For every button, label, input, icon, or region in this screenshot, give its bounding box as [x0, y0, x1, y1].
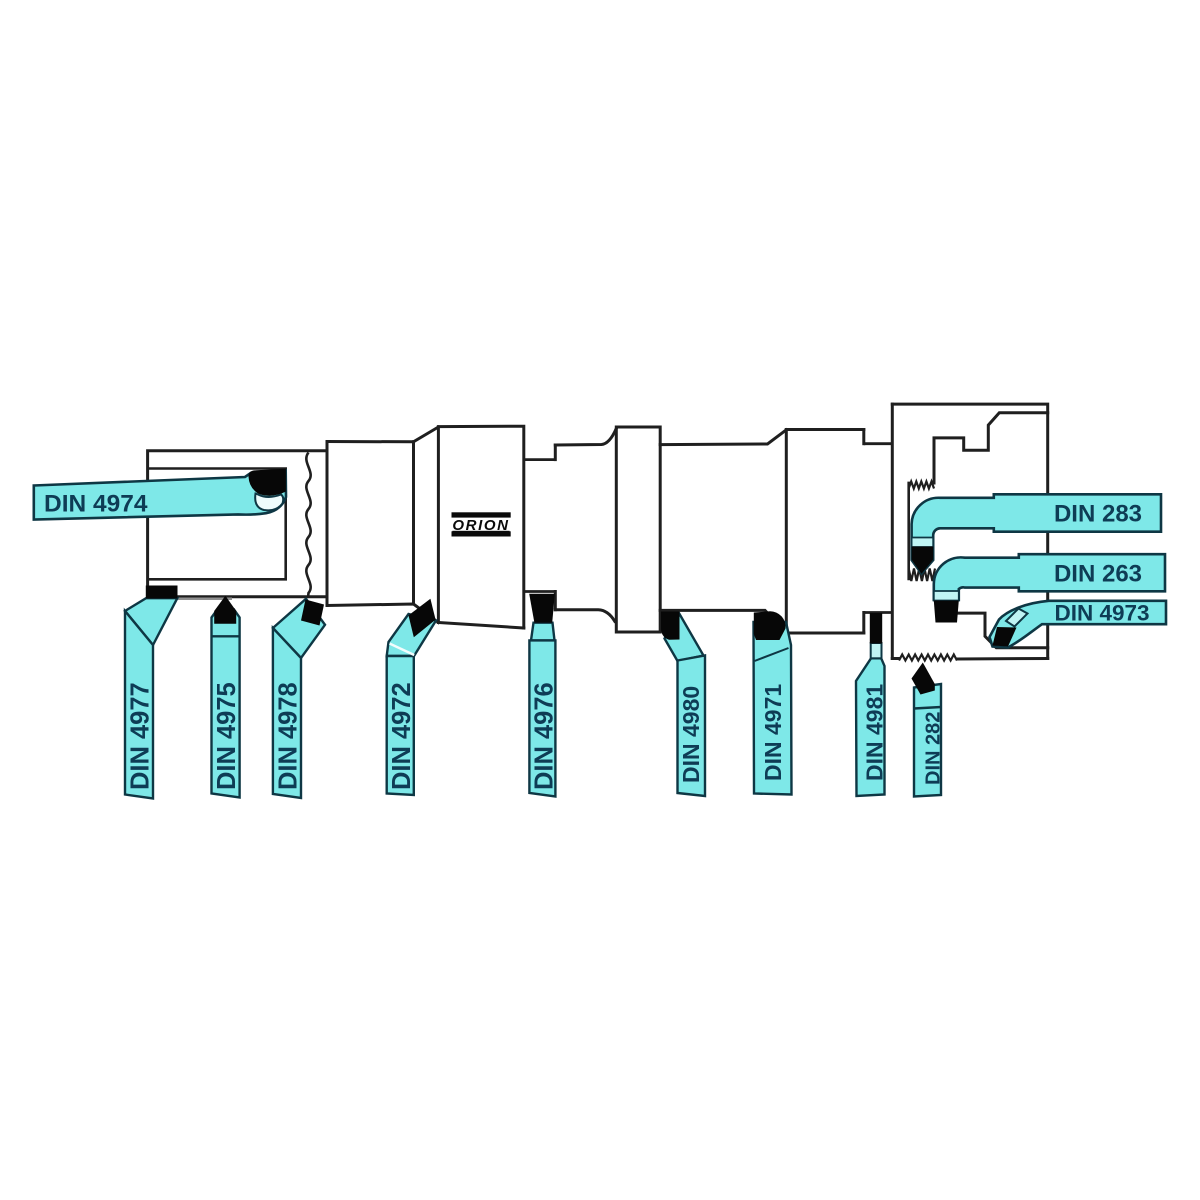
svg-text:DIN 4976: DIN 4976: [531, 682, 559, 790]
svg-text:ORION: ORION: [452, 517, 509, 534]
svg-text:DIN 4978: DIN 4978: [275, 682, 303, 790]
svg-text:DIN 4977: DIN 4977: [127, 682, 155, 790]
svg-text:DIN 4971: DIN 4971: [760, 684, 786, 781]
svg-text:DIN 4974: DIN 4974: [44, 491, 148, 518]
svg-text:DIN 283: DIN 283: [1054, 501, 1142, 528]
svg-text:DIN 4980: DIN 4980: [678, 686, 704, 783]
svg-text:DIN 4973: DIN 4973: [1054, 601, 1149, 626]
svg-text:DIN 4981: DIN 4981: [862, 684, 888, 781]
svg-text:DIN 4972: DIN 4972: [388, 682, 416, 790]
svg-text:DIN 282: DIN 282: [923, 712, 945, 785]
svg-text:DIN 4975: DIN 4975: [213, 682, 241, 790]
svg-text:DIN 263: DIN 263: [1054, 561, 1142, 588]
